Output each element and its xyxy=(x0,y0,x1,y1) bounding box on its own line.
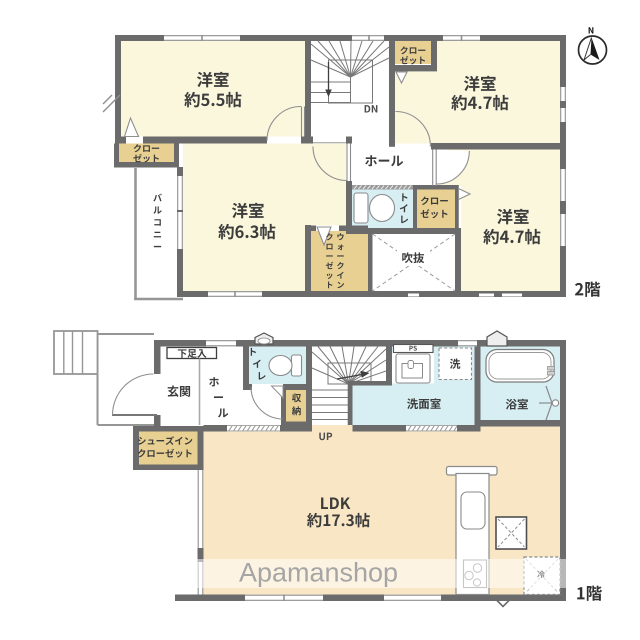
svg-text:Apamanshop: Apamanshop xyxy=(239,558,398,588)
